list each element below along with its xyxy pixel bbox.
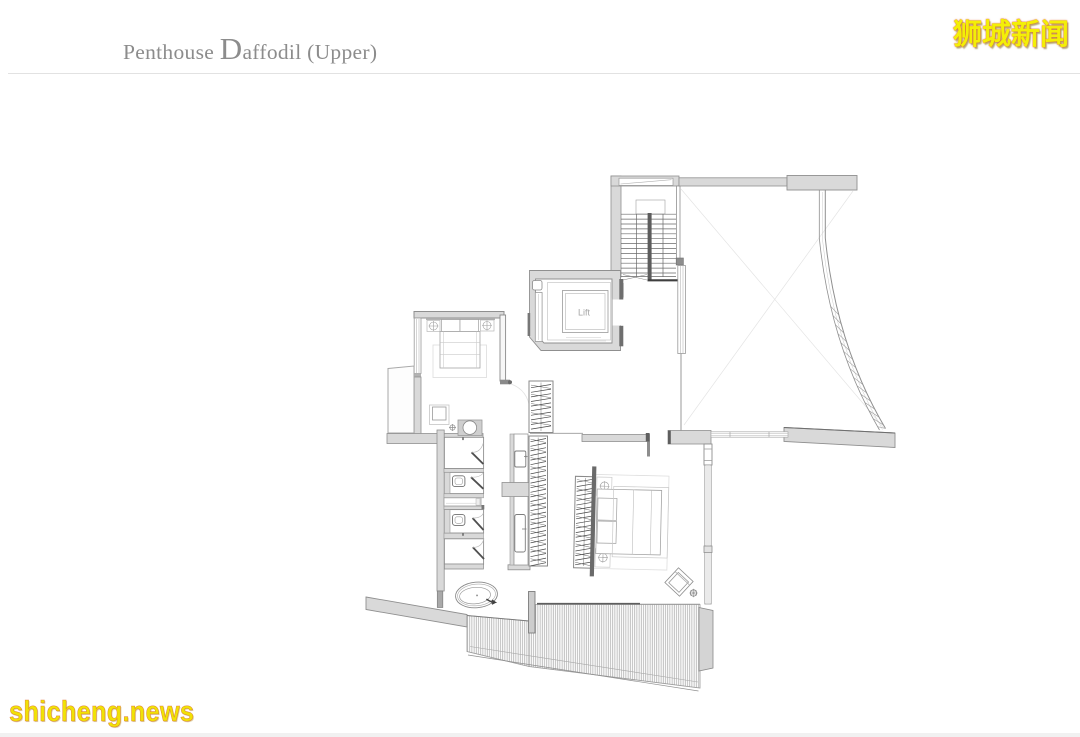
svg-text:Lift: Lift bbox=[578, 308, 591, 318]
